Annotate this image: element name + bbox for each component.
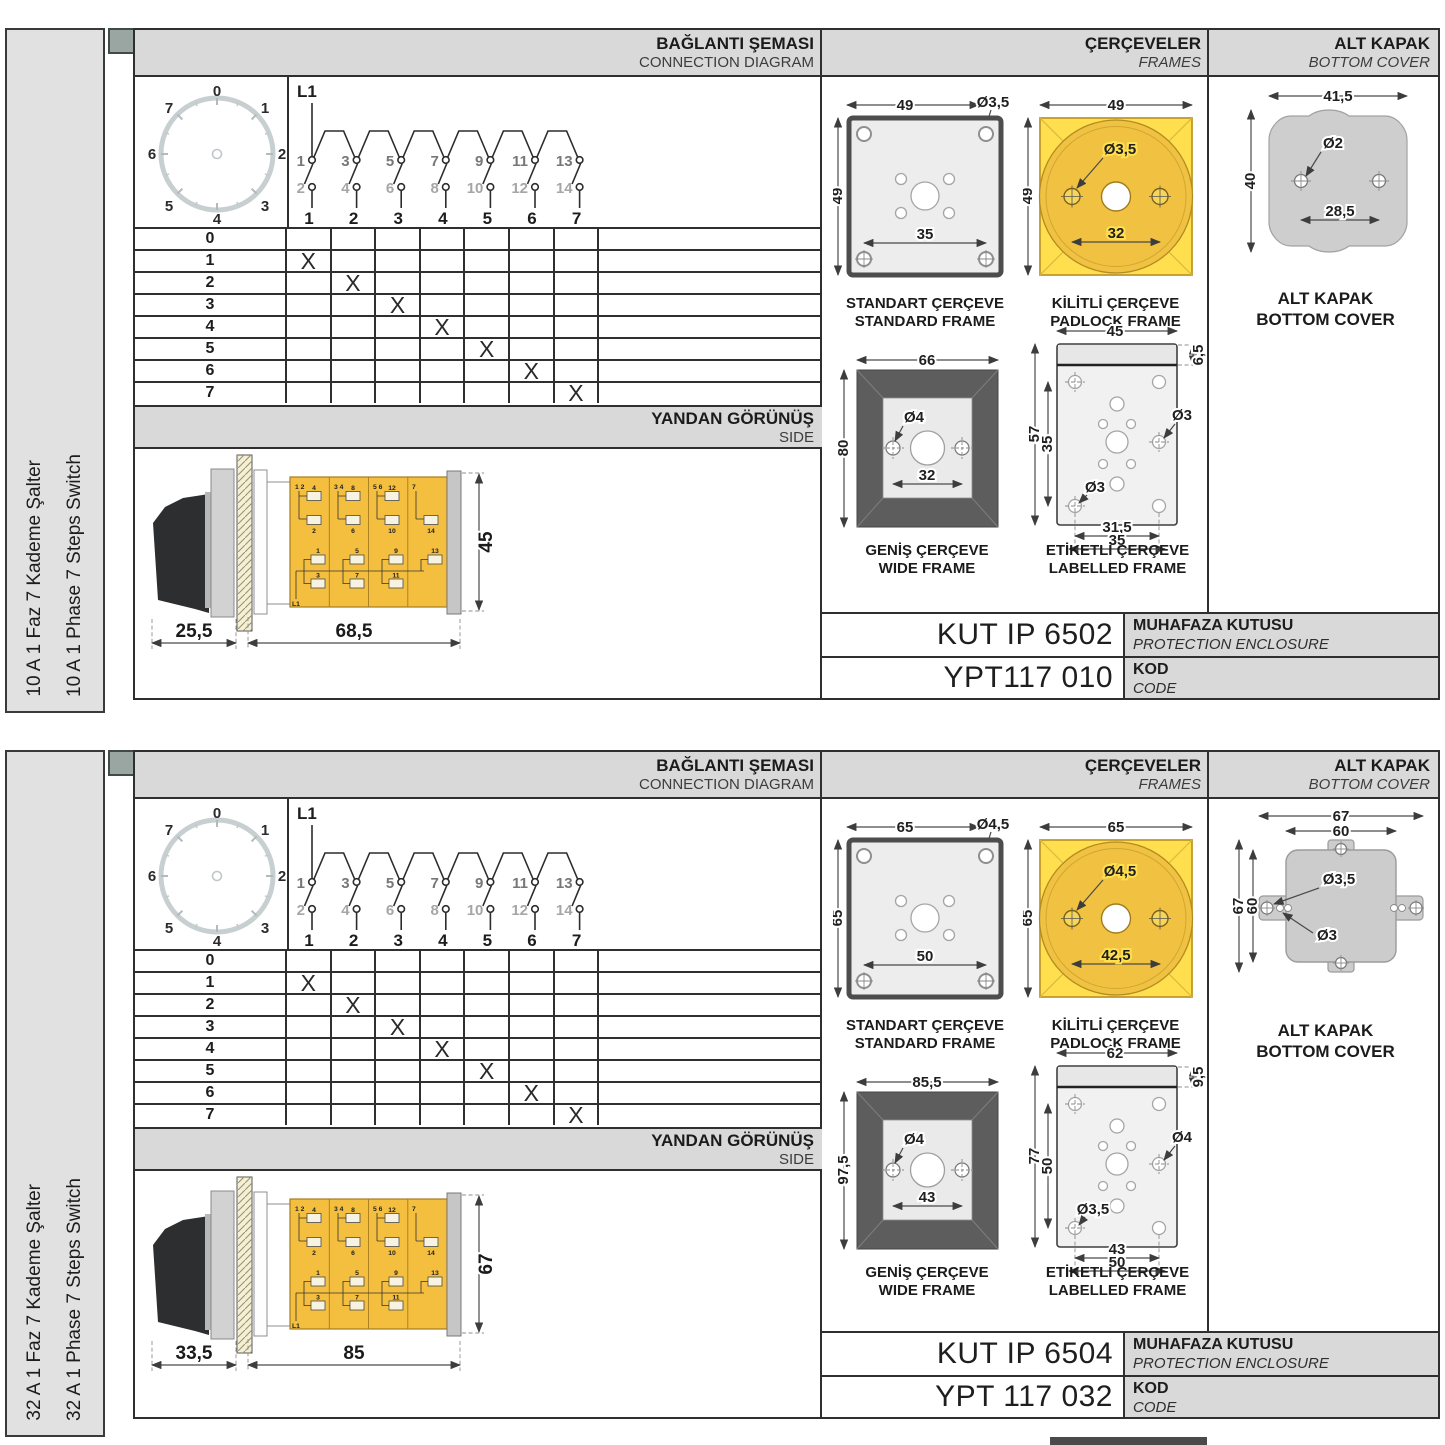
svg-text:11: 11 — [512, 153, 528, 170]
table-spacer — [599, 1105, 822, 1125]
svg-text:1: 1 — [316, 1270, 320, 1277]
padlock-frame-drawing: 65 65 Ø4,5 42,5 — [1023, 812, 1208, 1024]
contact-mark — [332, 973, 377, 993]
svg-text:1: 1 — [304, 209, 313, 227]
section-title-english: 32 A 1 Phase 7 Steps Switch — [64, 1178, 86, 1421]
svg-text:3 4: 3 4 — [334, 484, 344, 491]
svg-text:3: 3 — [261, 920, 269, 937]
svg-text:3: 3 — [316, 573, 320, 580]
section-title-strip: 10 A 1 Faz 7 Kademe Şalter 10 A 1 Phase … — [5, 28, 105, 713]
svg-text:7: 7 — [430, 875, 438, 892]
svg-text:6: 6 — [386, 180, 394, 197]
switch-knob — [153, 494, 209, 613]
contact-mark — [421, 295, 466, 315]
side-view-drawing: 1 2 4 2 1 3 3 4 8 6 5 7 5 6 12 — [140, 1173, 820, 1421]
dim-front: 33,5 — [176, 1343, 213, 1364]
position-dial: 0 1 2 3 4 5 6 7 — [141, 80, 293, 226]
svg-text:12: 12 — [511, 180, 528, 197]
header-subtitle: SIDE — [779, 429, 814, 447]
step-label: 5 — [135, 1061, 287, 1081]
svg-text:8: 8 — [351, 485, 355, 492]
svg-text:62: 62 — [1107, 1045, 1124, 1062]
next-section-edge — [1050, 1437, 1207, 1445]
contact-mark — [332, 1105, 377, 1125]
step-label: 1 — [135, 973, 287, 993]
contact-mark: X — [332, 273, 377, 293]
svg-text:4: 4 — [438, 931, 448, 949]
labelled-frame-drawing: 45 6,5 57 35 Ø3 — [1027, 318, 1207, 553]
svg-text:10: 10 — [467, 180, 484, 197]
wide-frame-drawing: 85,5 97,5 Ø4 43 — [835, 1070, 1020, 1262]
table-row: 4 X — [135, 1037, 822, 1059]
contact-mark — [465, 317, 510, 337]
contact-mark — [376, 1039, 421, 1059]
contact-mark: X — [510, 361, 555, 381]
step-label: 7 — [135, 383, 287, 403]
header-title: YANDAN GÖRÜNÜŞ — [651, 408, 814, 429]
contact-mark — [332, 339, 377, 359]
svg-text:3: 3 — [316, 1295, 320, 1302]
contact-mark — [510, 1061, 555, 1081]
svg-text:45: 45 — [1107, 323, 1124, 340]
contact-mark: X — [421, 317, 466, 337]
svg-text:Ø2: Ø2 — [1323, 135, 1343, 152]
dim-body: 68,5 — [336, 621, 373, 642]
svg-text:1: 1 — [297, 875, 305, 892]
contact-mark — [555, 295, 600, 315]
svg-text:60: 60 — [1333, 823, 1350, 840]
contact-mark — [465, 1083, 510, 1103]
svg-text:2: 2 — [349, 931, 358, 949]
svg-text:60: 60 — [1244, 898, 1261, 915]
step-label: 2 — [135, 995, 287, 1015]
svg-text:5 6: 5 6 — [373, 1206, 383, 1213]
table-spacer — [599, 229, 822, 249]
contact-mark — [465, 229, 510, 249]
svg-text:Ø3,5: Ø3,5 — [1323, 871, 1356, 888]
side-view-header: YANDAN GÖRÜNÜŞ SIDE — [135, 407, 822, 449]
svg-text:Ø3,5: Ø3,5 — [1104, 141, 1137, 158]
svg-text:Ø4,5: Ø4,5 — [977, 816, 1010, 833]
standard-frame-drawing: 65 Ø4,5 65 50 — [833, 812, 1020, 1024]
svg-text:12: 12 — [388, 485, 396, 492]
header-subtitle: BOTTOM COVER — [1309, 54, 1430, 72]
table-spacer — [599, 1039, 822, 1059]
svg-text:85,5: 85,5 — [912, 1074, 941, 1091]
svg-text:Ø4: Ø4 — [1172, 1129, 1193, 1146]
dial-label-3: 3 — [261, 198, 269, 215]
order-code: YPT117 010 — [822, 658, 1123, 698]
svg-text:6: 6 — [386, 902, 394, 919]
svg-text:9: 9 — [394, 1270, 398, 1277]
svg-text:6: 6 — [351, 528, 355, 535]
step-label: 0 — [135, 951, 287, 971]
svg-text:6: 6 — [351, 1250, 355, 1257]
contact-mark — [510, 273, 555, 293]
contact-mark — [510, 251, 555, 271]
contact-mark — [421, 951, 466, 971]
side-view-drawing: 1 2 4 2 1 3 3 4 8 6 5 7 5 6 — [140, 451, 820, 699]
svg-text:9: 9 — [475, 875, 483, 892]
svg-text:Ø3,5: Ø3,5 — [977, 94, 1010, 111]
dim-front: 25,5 — [176, 621, 213, 642]
contact-mark — [555, 1061, 600, 1081]
svg-text:13: 13 — [556, 875, 573, 892]
contact-mark — [555, 273, 600, 293]
table-row: 7 X — [135, 1103, 822, 1125]
contact-mark — [287, 1061, 332, 1081]
svg-text:5: 5 — [165, 920, 173, 937]
header-subtitle: FRAMES — [1138, 54, 1201, 72]
contact-mark — [287, 1083, 332, 1103]
svg-text:5: 5 — [386, 875, 394, 892]
standard-frame-caption: STANDART ÇERÇEVESTANDARD FRAME — [825, 1017, 1025, 1053]
contact-mark — [555, 361, 600, 381]
contact-mark — [465, 1039, 510, 1059]
step-label: 7 — [135, 1105, 287, 1125]
contact-mark — [465, 1017, 510, 1037]
contact-mark — [376, 317, 421, 337]
contact-diagram: L1 — [289, 77, 820, 227]
feed-label: L1 — [292, 601, 300, 608]
table-row: 3 X — [135, 293, 822, 315]
labelled-frame-caption: ETİKETLİ ÇERÇEVELABELLED FRAME — [1020, 542, 1215, 578]
section-title-turkish: 10 A 1 Faz 7 Kademe Şalter — [24, 460, 46, 697]
svg-text:8: 8 — [430, 902, 438, 919]
table-row: 7 X — [135, 381, 822, 403]
contact-mark — [555, 251, 600, 271]
table-row: 2 X — [135, 271, 822, 293]
svg-text:7: 7 — [430, 153, 438, 170]
table-row: 4 X — [135, 315, 822, 337]
step-label: 4 — [135, 317, 287, 337]
svg-text:12: 12 — [511, 902, 528, 919]
section-title-strip: 32 A 1 Faz 7 Kademe Şalter 32 A 1 Phase … — [5, 750, 105, 1437]
contact-mark — [287, 295, 332, 315]
svg-text:49: 49 — [897, 97, 914, 114]
svg-text:Ø4,5: Ø4,5 — [1104, 863, 1137, 880]
table-row: 3 X — [135, 1015, 822, 1037]
table-spacer — [599, 383, 822, 403]
svg-text:3: 3 — [393, 209, 402, 227]
svg-text:32: 32 — [919, 467, 936, 484]
svg-text:8: 8 — [351, 1207, 355, 1214]
svg-text:41,5: 41,5 — [1323, 88, 1352, 105]
contact-mark — [465, 361, 510, 381]
svg-text:9,5: 9,5 — [1190, 1067, 1207, 1088]
svg-text:2: 2 — [312, 528, 316, 535]
table-spacer — [599, 1061, 822, 1081]
step-label: 3 — [135, 1017, 287, 1037]
bottom-cover-drawing: 67 60 67 60 Ø3,5 Ø3 — [1213, 802, 1440, 1017]
switch-knob — [153, 1216, 209, 1335]
svg-text:Ø3: Ø3 — [1317, 927, 1337, 944]
svg-text:10: 10 — [388, 1250, 396, 1257]
contact-mark — [376, 973, 421, 993]
step-contact-table: 0 1 X — [135, 949, 822, 1129]
contact-mark — [421, 1017, 466, 1037]
svg-text:7: 7 — [572, 931, 581, 949]
svg-text:14: 14 — [427, 528, 435, 535]
svg-text:1: 1 — [297, 153, 305, 170]
frames-header: ÇERÇEVELER FRAMES — [822, 752, 1209, 799]
table-row: 2 X — [135, 993, 822, 1015]
contact-mark — [555, 317, 600, 337]
enclosure-code: KUT IP 6504 — [822, 1333, 1123, 1375]
contact-mark: X — [376, 1017, 421, 1037]
bottom-cover-caption: ALT KAPAKBOTTOM COVER — [1211, 1020, 1440, 1062]
svg-text:80: 80 — [835, 440, 852, 457]
svg-text:4: 4 — [213, 933, 222, 948]
table-row: 5 X — [135, 1059, 822, 1081]
svg-text:1: 1 — [304, 931, 313, 949]
contact-mark — [555, 339, 600, 359]
step-contact-table: 0 1 X — [135, 227, 822, 407]
svg-text:5: 5 — [483, 931, 492, 949]
contact-mark — [465, 273, 510, 293]
svg-text:9: 9 — [475, 153, 483, 170]
contact-mark — [510, 951, 555, 971]
contact-mark — [555, 973, 600, 993]
dial-label-2: 2 — [278, 146, 286, 163]
contact-mark — [421, 1083, 466, 1103]
table-spacer — [599, 973, 822, 993]
svg-text:5: 5 — [386, 153, 394, 170]
svg-text:2: 2 — [297, 902, 305, 919]
step-label: 5 — [135, 339, 287, 359]
table-spacer — [599, 295, 822, 315]
svg-text:3: 3 — [341, 875, 349, 892]
svg-text:9: 9 — [394, 548, 398, 555]
step-label: 3 — [135, 295, 287, 315]
contact-mark: X — [465, 339, 510, 359]
connection-diagram-header: BAĞLANTI ŞEMASI CONNECTION DIAGRAM — [135, 752, 822, 799]
svg-text:10: 10 — [388, 528, 396, 535]
position-dial: 0 1 2 3 4 5 6 7 — [141, 802, 293, 948]
contact-mark — [510, 317, 555, 337]
svg-text:7: 7 — [412, 484, 416, 491]
connection-diagram-header: BAĞLANTI ŞEMASI CONNECTION DIAGRAM — [135, 30, 822, 77]
contact-mark — [287, 229, 332, 249]
table-row: 5 X — [135, 337, 822, 359]
contact-mark — [287, 1017, 332, 1037]
svg-text:4: 4 — [341, 902, 350, 919]
svg-text:50: 50 — [1039, 1158, 1056, 1175]
contact-mark — [465, 973, 510, 993]
svg-text:28,5: 28,5 — [1325, 203, 1354, 220]
contact-mark — [555, 229, 600, 249]
header-subtitle: CONNECTION DIAGRAM — [639, 54, 814, 72]
contact-mark — [421, 383, 466, 403]
table-row: 1 X — [135, 971, 822, 993]
contact-mark — [287, 361, 332, 381]
contact-mark — [332, 1017, 377, 1037]
svg-text:65: 65 — [1108, 819, 1125, 836]
contact-mark — [421, 273, 466, 293]
contact-mark — [332, 951, 377, 971]
svg-text:10: 10 — [467, 902, 484, 919]
svg-text:Ø3: Ø3 — [1085, 479, 1105, 496]
svg-text:1 2: 1 2 — [295, 1206, 305, 1213]
contact-mark — [287, 995, 332, 1015]
contact-mark: X — [287, 973, 332, 993]
side-view-header: YANDAN GÖRÜNÜŞ SIDE — [135, 1129, 822, 1171]
wide-frame-caption: GENİŞ ÇERÇEVEWIDE FRAME — [827, 1264, 1027, 1300]
contact-mark — [376, 273, 421, 293]
svg-text:35: 35 — [1039, 436, 1056, 453]
contact-mark — [465, 383, 510, 403]
svg-text:43: 43 — [919, 1189, 936, 1206]
contact-mark — [555, 1083, 600, 1103]
svg-text:Ø3: Ø3 — [1172, 407, 1192, 424]
contact-mark — [421, 251, 466, 271]
svg-text:5: 5 — [483, 209, 492, 227]
index-square — [108, 28, 135, 54]
enclosure-label: MUHAFAZA KUTUSUPROTECTION ENCLOSURE — [1125, 1333, 1438, 1375]
contact-mark — [421, 339, 466, 359]
svg-text:4: 4 — [341, 180, 350, 197]
feed-label: L1 — [297, 82, 317, 101]
contact-mark: X — [465, 1061, 510, 1081]
contact-mark — [510, 339, 555, 359]
dial-label-7: 7 — [165, 100, 173, 117]
bottom-cover-drawing: 41,5 40 Ø2 28,5 — [1213, 80, 1440, 285]
contact-mark — [287, 383, 332, 403]
svg-text:3: 3 — [341, 153, 349, 170]
contact-mark — [332, 295, 377, 315]
bottom-cover-caption: ALT KAPAKBOTTOM COVER — [1211, 288, 1440, 330]
svg-text:L1: L1 — [292, 1323, 300, 1330]
contact-mark — [376, 951, 421, 971]
contact-mark — [332, 229, 377, 249]
contact-mark — [510, 995, 555, 1015]
svg-text:13: 13 — [431, 548, 439, 555]
svg-text:2: 2 — [312, 1250, 316, 1257]
contact-mark — [510, 1017, 555, 1037]
svg-text:8: 8 — [430, 180, 438, 197]
contact-mark — [332, 251, 377, 271]
svg-text:7: 7 — [412, 1206, 416, 1213]
svg-text:5: 5 — [355, 548, 359, 555]
svg-text:49: 49 — [1023, 188, 1036, 205]
svg-text:97,5: 97,5 — [835, 1155, 852, 1184]
contact-mark — [510, 973, 555, 993]
contact-mark — [376, 1105, 421, 1125]
contact-mark — [510, 383, 555, 403]
contact-mark: X — [421, 1039, 466, 1059]
contact-mark — [421, 1061, 466, 1081]
svg-text:1: 1 — [261, 822, 269, 839]
contact-mark: X — [555, 383, 600, 403]
contact-mark — [332, 361, 377, 381]
contact-mark — [332, 1061, 377, 1081]
dim-body: 85 — [343, 1343, 365, 1364]
svg-text:13: 13 — [556, 153, 573, 170]
svg-text:2: 2 — [278, 868, 286, 885]
wide-frame-drawing: 66 80 Ø4 32 — [835, 348, 1020, 540]
contact-mark — [376, 339, 421, 359]
contact-mark — [376, 229, 421, 249]
table-spacer — [599, 317, 822, 337]
dim-height: 45 — [476, 531, 497, 553]
table-spacer — [599, 1083, 822, 1103]
table-spacer — [599, 995, 822, 1015]
end-cap — [447, 471, 461, 614]
svg-text:11: 11 — [392, 573, 399, 580]
contact-mark — [287, 1039, 332, 1059]
contact-mark — [421, 361, 466, 381]
svg-text:40: 40 — [1242, 173, 1259, 190]
table-row: 1 X — [135, 249, 822, 271]
wide-frame-caption: GENİŞ ÇERÇEVEWIDE FRAME — [827, 542, 1027, 578]
contact-mark — [421, 973, 466, 993]
standard-frame-drawing: 49 Ø3,5 49 35 — [833, 90, 1020, 302]
section-32a: 32 A 1 Faz 7 Kademe Şalter 32 A 1 Phase … — [5, 750, 1440, 1440]
contact-mark — [376, 995, 421, 1015]
contact-mark — [376, 361, 421, 381]
standard-frame-caption: STANDART ÇERÇEVESTANDARD FRAME — [825, 295, 1025, 331]
svg-text:4: 4 — [312, 485, 316, 492]
order-code: YPT 117 032 — [822, 1377, 1123, 1417]
svg-text:65: 65 — [1023, 910, 1036, 927]
contact-mark — [510, 295, 555, 315]
svg-text:11: 11 — [392, 1295, 399, 1302]
labelled-frame-drawing: 62 9,5 77 50 Ø4 — [1027, 1040, 1207, 1275]
contact-mark — [376, 251, 421, 271]
svg-text:1: 1 — [316, 548, 320, 555]
svg-text:Ø3,5: Ø3,5 — [1077, 1201, 1110, 1218]
step-label: 4 — [135, 1039, 287, 1059]
svg-text:7: 7 — [355, 1295, 359, 1302]
svg-text:1 2: 1 2 — [295, 484, 305, 491]
contact-mark — [287, 339, 332, 359]
dial-label-1: 1 — [261, 100, 269, 117]
contact-mark: X — [376, 295, 421, 315]
contact-mark: X — [510, 1083, 555, 1103]
svg-text:49: 49 — [1108, 97, 1125, 114]
svg-text:42,5: 42,5 — [1101, 947, 1130, 964]
svg-text:6: 6 — [527, 931, 536, 949]
dim-height: 67 — [476, 1253, 497, 1274]
svg-text:7: 7 — [355, 573, 359, 580]
contact-mark — [465, 951, 510, 971]
step-label: 6 — [135, 361, 287, 381]
svg-text:7: 7 — [165, 822, 173, 839]
step-label: 0 — [135, 229, 287, 249]
contact-mark — [421, 995, 466, 1015]
svg-text:13: 13 — [431, 1270, 439, 1277]
contact-mark — [510, 1105, 555, 1125]
svg-text:50: 50 — [917, 948, 934, 965]
contact-mark — [332, 1083, 377, 1103]
contact-diagram: L1 — [289, 799, 820, 949]
table-row: 6 X — [135, 359, 822, 381]
step-label: 2 — [135, 273, 287, 293]
padlock-frame-drawing: 49 49 Ø3,5 32 — [1023, 90, 1208, 302]
table-spacer — [599, 273, 822, 293]
svg-text:5 6: 5 6 — [373, 484, 383, 491]
table-row: 0 — [135, 227, 822, 249]
contact-mark — [421, 229, 466, 249]
contact-mark — [465, 1105, 510, 1125]
header-title: ÇERÇEVELER — [1085, 33, 1201, 54]
svg-text:2: 2 — [349, 209, 358, 227]
contact-mark — [332, 383, 377, 403]
svg-text:32: 32 — [1108, 225, 1125, 242]
index-square — [108, 750, 135, 776]
svg-text:6: 6 — [148, 868, 156, 885]
header-title: ALT KAPAK — [1334, 33, 1430, 54]
